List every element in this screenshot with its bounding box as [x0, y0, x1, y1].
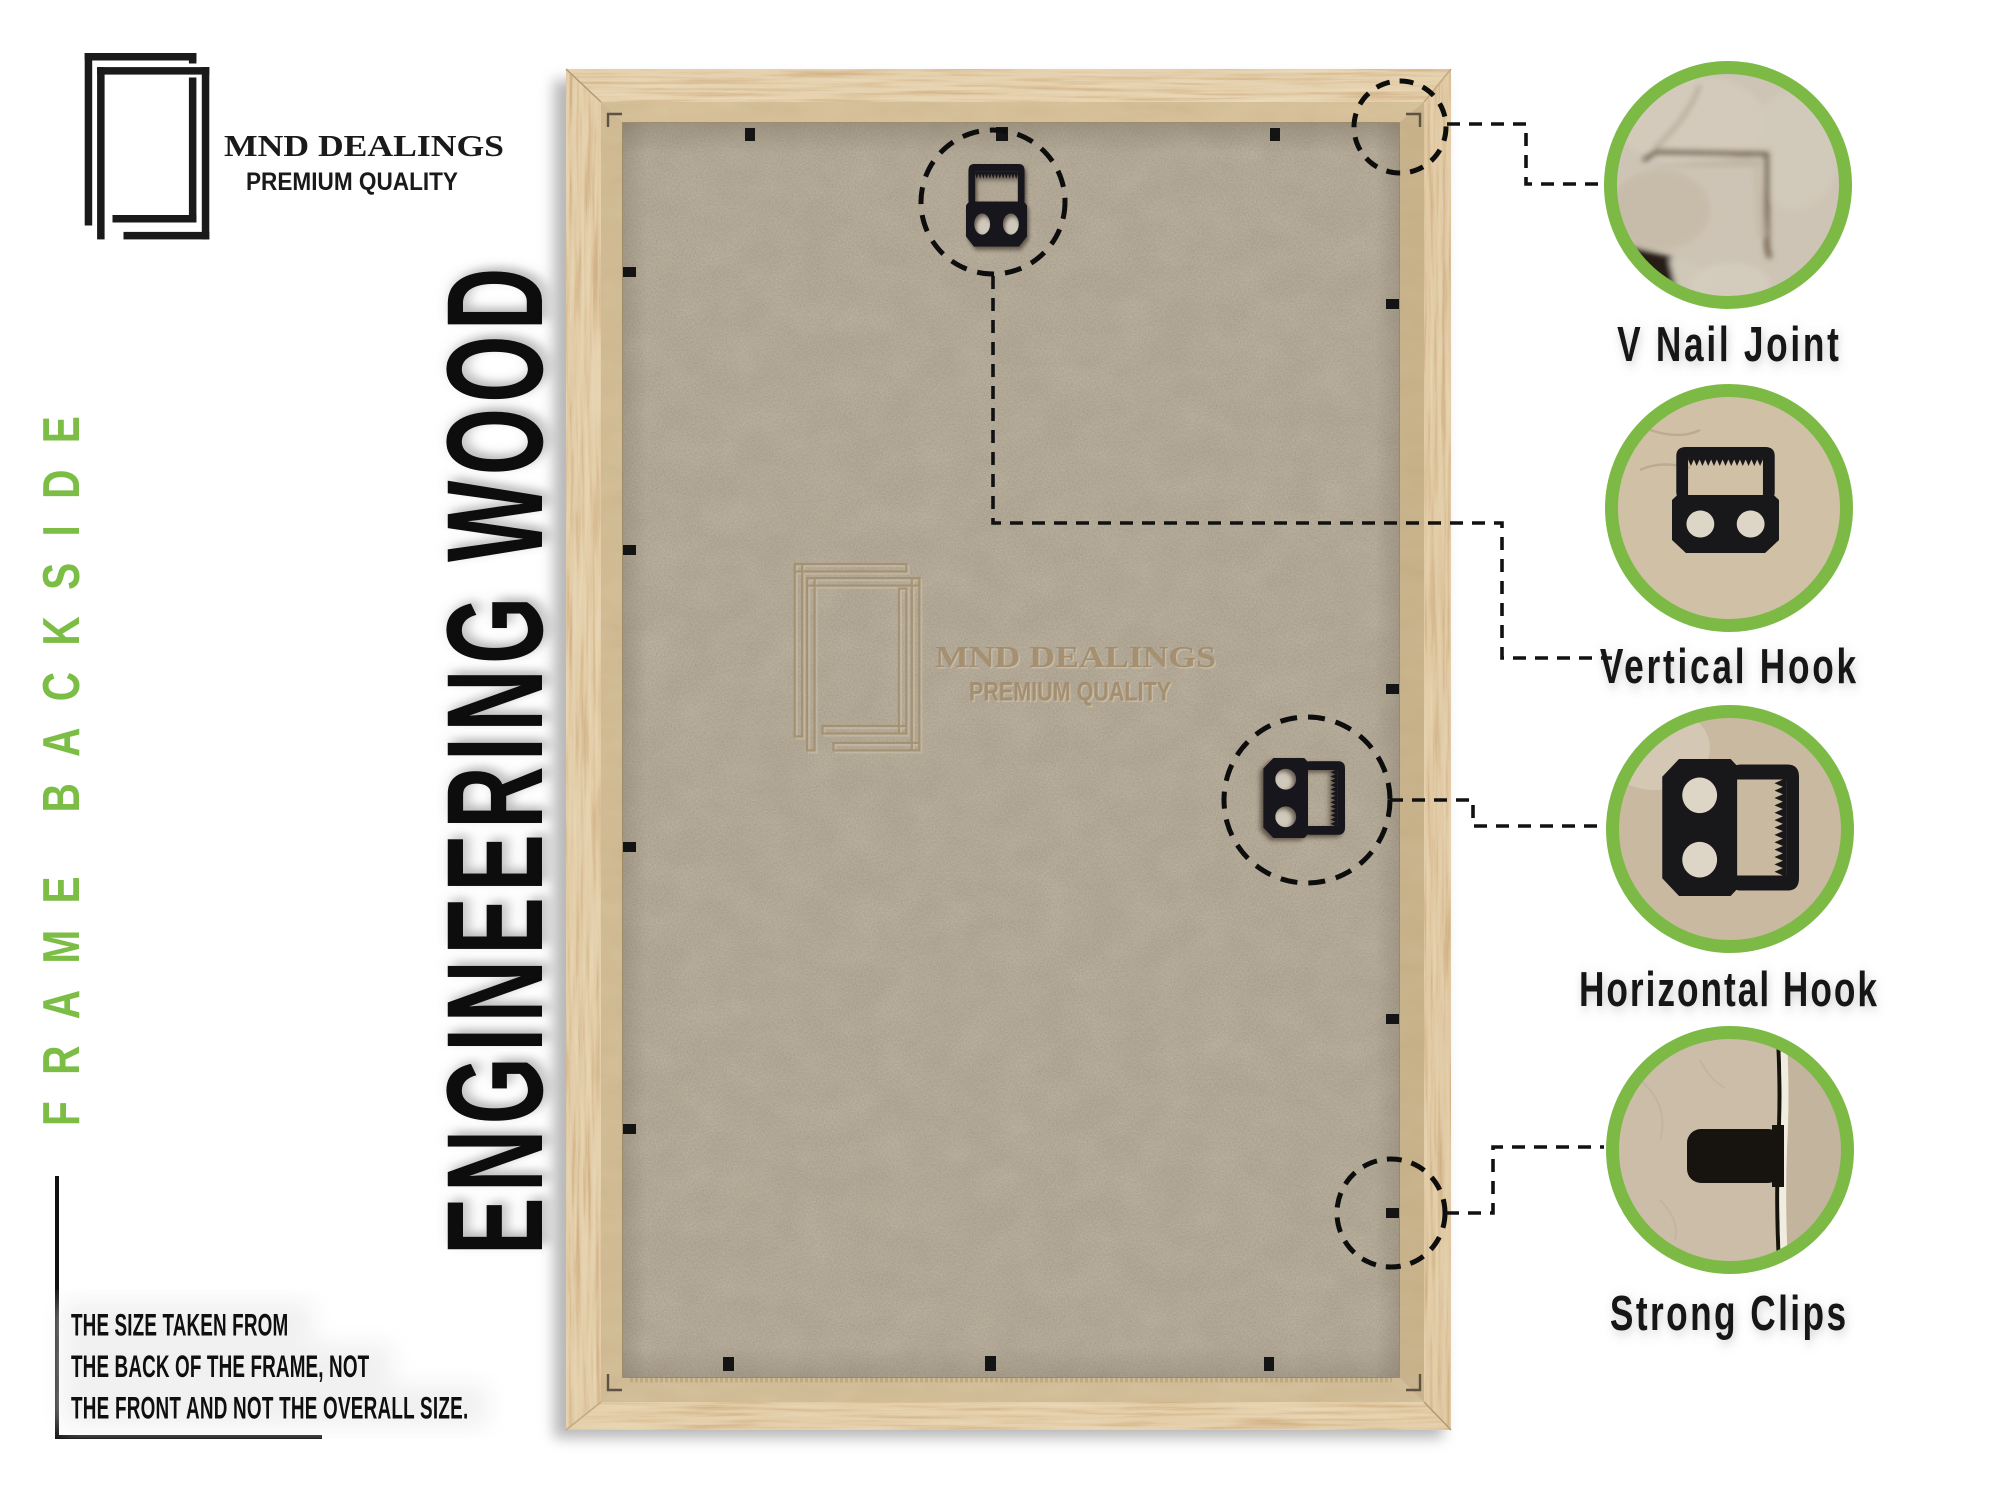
svg-text:Strong Clips: Strong Clips [1610, 1286, 1846, 1341]
svg-text:PREMIUM QUALITY: PREMIUM QUALITY [969, 677, 1171, 707]
svg-text:PREMIUM QUALITY: PREMIUM QUALITY [246, 168, 458, 196]
svg-text:THE BACK OF THE FRAME, NOT: THE BACK OF THE FRAME, NOT [71, 1348, 369, 1384]
svg-text:MND DEALINGS: MND DEALINGS [224, 129, 504, 163]
svg-text:Vertical Hook: Vertical Hook [1600, 639, 1857, 694]
svg-text:THE FRONT AND NOT THE OVERALL: THE FRONT AND NOT THE OVERALL SIZE. [71, 1389, 468, 1425]
svg-text:THE SIZE TAKEN FROM: THE SIZE TAKEN FROM [71, 1306, 288, 1342]
svg-text:V Nail Joint: V Nail Joint [1617, 317, 1839, 372]
svg-text:ENGINEERING WOOD: ENGINEERING WOOD [419, 268, 572, 1255]
svg-text:MND DEALINGS: MND DEALINGS [935, 639, 1216, 674]
